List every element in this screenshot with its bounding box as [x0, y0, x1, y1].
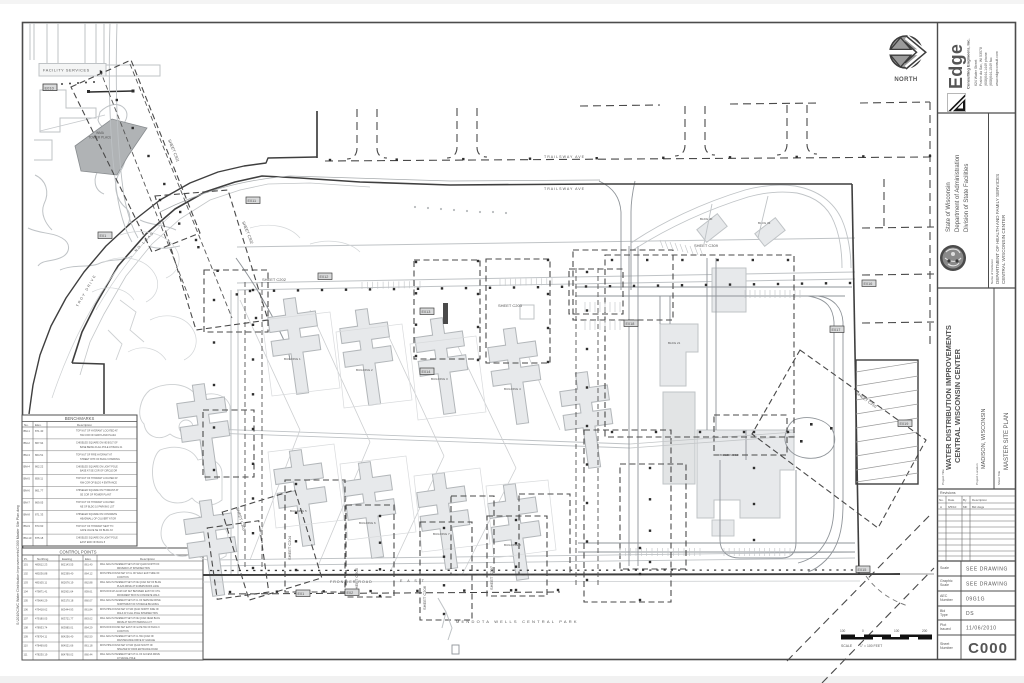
svg-text:109: 109	[24, 635, 29, 639]
svg-text:SHEET C206: SHEET C206	[422, 585, 427, 610]
svg-text:860.44: 860.44	[85, 653, 93, 657]
svg-text:803721.77: 803721.77	[61, 617, 74, 621]
svg-text:MASTER SITE PLAN: MASTER SITE PLAN	[1004, 413, 1010, 470]
svg-text:DRIVEWAY AT INTERSECTION: DRIVEWAY AT INTERSECTION	[117, 567, 150, 570]
svg-text:CHISELED SQUARE ON HYDRANT AT: CHISELED SQUARE ON HYDRANT AT	[76, 489, 119, 492]
svg-text:Type: Type	[940, 613, 948, 617]
svg-text:862.50: 862.50	[85, 635, 93, 639]
svg-text:CENTRAL WISCONSIN CENTER: CENTRAL WISCONSIN CENTER	[1001, 214, 1006, 284]
svg-text:867.94: 867.94	[35, 441, 44, 445]
svg-text:DS: DS	[966, 611, 974, 617]
svg-text:TOP NUT OF HYDRANT LOCATED AT: TOP NUT OF HYDRANT LOCATED AT	[76, 430, 118, 433]
svg-text:478704.11: 478704.11	[35, 635, 48, 639]
svg-text:SHELTER AT PARK ENTRANCE ROAD: SHELTER AT PARK ENTRANCE ROAD	[117, 648, 158, 651]
svg-text:479871.41: 479871.41	[35, 590, 48, 594]
svg-text:Description: Description	[972, 498, 987, 502]
svg-text:MAINTENANCE DRIVE AT GARAGE: MAINTENANCE DRIVE AT GARAGE	[117, 639, 156, 642]
svg-text:CHISELED SQUARE ON LIGHT POLE: CHISELED SQUARE ON LIGHT POLE	[76, 537, 118, 540]
svg-text:E010: E010	[45, 85, 55, 90]
svg-text:E019: E019	[900, 422, 909, 426]
svg-text:875.18: 875.18	[35, 536, 44, 540]
svg-text:Number: Number	[940, 598, 954, 602]
svg-text:Scale: Scale	[940, 583, 949, 587]
svg-text:CHISELED SQUARE ON CONCRETE: CHISELED SQUARE ON CONCRETE	[76, 513, 117, 516]
svg-text:864.12: 864.12	[85, 572, 93, 576]
svg-text:Project Title: Project Title	[941, 469, 945, 485]
svg-text:E013: E013	[422, 310, 431, 314]
svg-text:100: 100	[840, 629, 846, 633]
svg-text:110: 110	[24, 644, 29, 648]
svg-text:Number: Number	[940, 646, 954, 650]
svg-text:BM-1: BM-1	[24, 429, 31, 433]
svg-text:MAG NAIL IN PAVEMENT SET AT C: MAG NAIL IN PAVEMENT SET AT CL OF ACCESS…	[100, 653, 160, 656]
svg-text:BUILDING 7: BUILDING 7	[433, 532, 450, 536]
svg-text:MENDOTA WELLS CENTRAL PARK: MENDOTA WELLS CENTRAL PARK	[456, 619, 579, 624]
svg-text:861.40: 861.40	[85, 563, 93, 567]
svg-text:106: 106	[24, 608, 29, 612]
svg-text:BUILDING 3: BUILDING 3	[431, 377, 448, 381]
svg-text:CONTROL POINTS: CONTROL POINTS	[59, 550, 96, 555]
svg-text:MAG NAIL IN PAVEMENT SET AT C: MAG NAIL IN PAVEMENT SET AT CL SW QUAD O…	[100, 635, 155, 638]
svg-text:BM-6: BM-6	[24, 489, 31, 493]
svg-text:802399.40: 802399.40	[61, 572, 74, 576]
svg-text:JUNCTION: JUNCTION	[117, 577, 129, 579]
svg-text:Pt.: Pt.	[24, 557, 28, 561]
svg-text:SHEET C204: SHEET C204	[287, 535, 292, 560]
svg-text:102: 102	[24, 572, 29, 576]
svg-text:107: 107	[24, 617, 29, 621]
svg-text:104: 104	[24, 590, 29, 594]
svg-text:103: 103	[24, 581, 29, 585]
svg-text:SHEET C202: SHEET C202	[262, 277, 287, 282]
svg-text:108: 108	[24, 626, 29, 630]
svg-text:NORTHWEST OF STORAGE BUILDING: NORTHWEST OF STORAGE BUILDING	[117, 603, 159, 606]
svg-text:TOWER PLACE: TOWER PLACE	[88, 136, 111, 140]
svg-text:STREET INTX OF BLDG 6 PARKING: STREET INTX OF BLDG 6 PARKING	[80, 458, 120, 461]
svg-text:480512.23: 480512.23	[35, 563, 48, 567]
svg-text:E02: E02	[347, 591, 354, 595]
svg-text:803444.93: 803444.93	[61, 608, 74, 612]
svg-text:SCALE: SCALE	[841, 644, 853, 648]
svg-text:E01: E01	[100, 234, 107, 238]
svg-text:E015: E015	[858, 568, 867, 572]
svg-text:624 Water Street: 624 Water Street	[974, 60, 978, 86]
svg-text:E014: E014	[422, 370, 431, 374]
svg-text:860.07: 860.07	[85, 599, 93, 603]
svg-text:1" = 100 FEET: 1" = 100 FEET	[860, 644, 882, 648]
svg-text:09G1G: 09G1G	[966, 597, 985, 603]
svg-text:0: 0	[862, 629, 864, 633]
svg-text:BUILDING 1: BUILDING 1	[284, 357, 301, 361]
svg-text:802676.19: 802676.19	[61, 581, 74, 585]
svg-text:E A S T: E A S T	[400, 579, 426, 583]
svg-text:JUNCTION: JUNCTION	[117, 631, 129, 633]
svg-text:BM-8: BM-8	[24, 512, 31, 516]
svg-text:MAG NAIL IN PAVEMENT SET AT N: MAG NAIL IN PAVEMENT SET AT NE QUAD NEAR…	[100, 617, 160, 620]
svg-text:State of Wisconsin: State of Wisconsin	[946, 182, 952, 232]
svg-text:SEE DRAWING: SEE DRAWING	[966, 582, 1008, 588]
svg-text:Elev.: Elev.	[85, 557, 92, 561]
svg-text:105: 105	[24, 599, 29, 603]
svg-text:NE OF BLDG 10 PARKING LOT: NE OF BLDG 10 PARKING LOT	[80, 505, 115, 508]
svg-text:858.11: 858.11	[35, 477, 44, 481]
svg-text:SEE DRAWING: SEE DRAWING	[966, 567, 1008, 573]
svg-text:864.29: 864.29	[85, 626, 93, 630]
svg-text:IRON PIPE FOUND SET AT SW QUA: IRON PIPE FOUND SET AT SW QUAD NORTH SID…	[100, 608, 160, 611]
svg-text:862.88: 862.88	[85, 581, 93, 585]
svg-text:Easting: Easting	[62, 557, 72, 561]
svg-text:DEPARTMENT OF HEALTH AND FAMIL: DEPARTMENT OF HEALTH AND FAMILY SERVICES	[995, 174, 1000, 284]
svg-text:873.60: 873.60	[35, 524, 44, 528]
svg-text:804521.66: 804521.66	[61, 644, 74, 648]
svg-text:TOP NUT OF HYDRANT LOCATED: TOP NUT OF HYDRANT LOCATED	[76, 501, 115, 504]
svg-text:(608)644-1549 fax: (608)644-1549 fax	[989, 57, 993, 86]
svg-text:803170.18: 803170.18	[61, 599, 74, 603]
svg-text:802901.64: 802901.64	[61, 590, 74, 594]
svg-text:Issued: Issued	[940, 627, 951, 631]
svg-text:Description: Description	[140, 557, 155, 561]
svg-text:BUILDING 6: BUILDING 6	[359, 521, 376, 525]
svg-text:Prairie du Sac, WI 53578: Prairie du Sac, WI 53578	[979, 47, 983, 86]
svg-text:804790.02: 804790.02	[61, 653, 74, 657]
svg-text:200: 200	[922, 629, 928, 633]
svg-text:BLDG 33: BLDG 33	[758, 221, 771, 225]
svg-text:E016: E016	[864, 282, 873, 286]
svg-text:861.18: 861.18	[85, 644, 93, 648]
svg-text:479640.29: 479640.29	[35, 599, 48, 603]
svg-text:FRONTIER ROAD: FRONTIER ROAD	[330, 580, 373, 584]
svg-text:478230.19: 478230.19	[35, 653, 48, 657]
svg-text:E012: E012	[320, 275, 329, 279]
svg-text:Name of Institution: Name of Institution	[990, 259, 994, 284]
svg-text:MONUMENT BOX IN CONCRETE WALK: MONUMENT BOX IN CONCRETE WALK	[117, 594, 160, 597]
svg-text:BM-3: BM-3	[24, 453, 31, 457]
svg-text:Elev.: Elev.	[35, 423, 42, 427]
svg-text:DRIVE AT SOUTH PARKING LOT: DRIVE AT SOUTH PARKING LOT	[117, 621, 152, 624]
svg-text:A: A	[940, 505, 942, 509]
svg-text:WMA: WMA	[96, 131, 105, 135]
svg-text:802143.55: 802143.55	[61, 563, 74, 567]
svg-text:IRON PIPE FOUND SET AT CL OF: IRON PIPE FOUND SET AT CL OF WALK EAST S…	[100, 572, 160, 575]
svg-text:BM-2: BM-2	[24, 441, 31, 445]
svg-text:869.05: 869.05	[35, 500, 44, 504]
svg-text:100: 100	[894, 629, 900, 633]
svg-text:AT SIGNAL POLE: AT SIGNAL POLE	[117, 657, 136, 660]
svg-text:861.77: 861.77	[35, 489, 44, 493]
svg-text:S:\2010\CWC Water Distribution: S:\2010\CWC Water Distribution Improveme…	[16, 505, 20, 625]
svg-text:CENTRAL WISCONSIN CENTER: CENTRAL WISCONSIN CENTER	[953, 348, 962, 463]
svg-text:862.22: 862.22	[35, 465, 44, 469]
svg-text:HEADWALL OF CULVERT AT DR: HEADWALL OF CULVERT AT DR	[80, 517, 116, 520]
svg-text:Revisions: Revisions	[940, 491, 956, 495]
svg-text:IRON ROD W/ ALUM CAP SET BETW: IRON ROD W/ ALUM CAP SET BETWEEN EAST OF…	[100, 590, 161, 593]
svg-text:NORTH: NORTH	[894, 77, 917, 83]
svg-text:No.: No.	[939, 498, 944, 502]
svg-text:Sheet Title: Sheet Title	[997, 470, 1001, 485]
svg-text:Bid dwgs: Bid dwgs	[972, 505, 985, 509]
svg-text:E01: E01	[298, 592, 305, 596]
svg-text:TOP NUT OF FIRE HYDRANT AT: TOP NUT OF FIRE HYDRANT AT	[76, 453, 113, 456]
svg-text:6/5/10: 6/5/10	[948, 505, 957, 509]
svg-text:BM-9: BM-9	[24, 524, 31, 528]
svg-text:479418.62: 479418.62	[35, 608, 48, 612]
svg-text:BASE AT SE COR OF CIRCLE DR: BASE AT SE COR OF CIRCLE DR	[80, 470, 117, 473]
svg-text:E018: E018	[626, 322, 635, 326]
svg-text:TRAILSWAY AVE: TRAILSWAY AVE	[544, 187, 585, 191]
svg-text:11/06/2010: 11/06/2010	[966, 626, 997, 632]
svg-text:CHISELED SQUARE ON LIGHT POLE: CHISELED SQUARE ON LIGHT POLE	[76, 465, 118, 468]
svg-text:CHISELED SQUARE ON NE BOLT OF: CHISELED SQUARE ON NE BOLT OF	[76, 442, 118, 445]
svg-text:111: 111	[24, 653, 28, 657]
svg-text:480236.88: 480236.88	[35, 572, 48, 576]
svg-text:SHEET C207: SHEET C207	[489, 565, 494, 590]
svg-text:479180.05: 479180.05	[35, 617, 48, 621]
svg-text:SE COR OF POWER PLANT: SE COR OF POWER PLANT	[80, 494, 112, 497]
svg-text:Consulting Engineers, Inc.: Consulting Engineers, Inc.	[966, 39, 971, 89]
svg-text:By: By	[963, 498, 967, 502]
svg-text:864.51: 864.51	[35, 453, 44, 457]
svg-text:MAG NAIL IN PAVEMENT SET AT C: MAG NAIL IN PAVEMENT SET AT CL OF SERVIC…	[100, 599, 161, 602]
svg-text:E011: E011	[248, 199, 257, 203]
svg-text:No.: No.	[24, 423, 29, 427]
svg-text:BM-10: BM-10	[24, 536, 32, 540]
svg-text:GATE VALVE SE OF BLDG 33: GATE VALVE SE OF BLDG 33	[80, 529, 113, 532]
svg-text:Scale: Scale	[940, 566, 949, 570]
svg-text:C000: C000	[968, 640, 1008, 657]
svg-text:TRAILSWAY AVE: TRAILSWAY AVE	[544, 155, 585, 159]
svg-text:Project Location: Project Location	[975, 463, 979, 485]
svg-text:SHEET C203: SHEET C203	[498, 303, 523, 308]
svg-text:BUILDING 4: BUILDING 4	[504, 387, 521, 391]
svg-text:BENCHMARKS: BENCHMARKS	[65, 416, 95, 421]
svg-text:871.40: 871.40	[35, 429, 44, 433]
svg-text:TOP NUT OF HYDRANT LOCATED AT: TOP NUT OF HYDRANT LOCATED AT	[76, 477, 118, 480]
svg-text:804256.40: 804256.40	[61, 635, 74, 639]
svg-text:861.84: 861.84	[85, 608, 93, 612]
svg-text:www.edgeconsult.com: www.edgeconsult.com	[995, 51, 999, 86]
svg-text:Date: Date	[948, 498, 955, 502]
svg-text:NW COR OF BLDG 4 ENTRANCE: NW COR OF BLDG 4 ENTRANCE	[80, 482, 117, 485]
svg-text:BUILDING 2: BUILDING 2	[356, 368, 373, 372]
svg-text:(608)644-1449 phone: (608)644-1449 phone	[984, 52, 988, 86]
svg-text:TOP NUT OF HYDRANT NEXT TO: TOP NUT OF HYDRANT NEXT TO	[76, 525, 114, 528]
svg-text:871.33: 871.33	[35, 512, 44, 516]
svg-text:IRON PIPE FOUND SET AT NW QUA: IRON PIPE FOUND SET AT NW QUAD SOUTH OF	[100, 644, 154, 647]
svg-text:PLAZA DRIVE AT SUPERVISORS LAN: PLAZA DRIVE AT SUPERVISORS LANE	[117, 585, 159, 588]
svg-text:WATER DISTRIBUTION IMPROVEMENT: WATER DISTRIBUTION IMPROVEMENTS	[944, 325, 953, 470]
svg-text:SHEET C309: SHEET C309	[694, 243, 719, 248]
svg-text:MADISON, WISCONSIN: MADISON, WISCONSIN	[981, 408, 987, 469]
svg-text:E017: E017	[832, 328, 841, 332]
svg-text:480105.11: 480105.11	[35, 581, 48, 585]
svg-text:MAG NAIL IN PAVEMENT SET AT N: MAG NAIL IN PAVEMENT SET AT NE QUAD SW O…	[100, 581, 161, 584]
svg-text:IRON ROD FOUND SET EAST OF GA: IRON ROD FOUND SET EAST OF GATE SW OF BL…	[100, 626, 160, 629]
svg-text:101: 101	[24, 563, 29, 567]
svg-text:BASE BEING FLAG POLE AT BLDG 2: BASE BEING FLAG POLE AT BLDG 21	[80, 446, 123, 449]
svg-text:863.02: 863.02	[85, 617, 93, 621]
svg-text:Northing: Northing	[37, 557, 49, 561]
svg-text:803985.01: 803985.01	[61, 626, 74, 630]
svg-text:859.61: 859.61	[85, 590, 93, 594]
svg-text:MAG NAIL IN PAVEMENT SET AT N: MAG NAIL IN PAVEMENT SET AT NW QUAD NORT…	[100, 563, 160, 566]
svg-text:WALK AT FLAG POLE INTERSECTION: WALK AT FLAG POLE INTERSECTION	[117, 612, 158, 615]
svg-text:MF: MF	[963, 505, 967, 509]
svg-text:Description: Description	[77, 423, 92, 427]
svg-text:BLDG 21: BLDG 21	[668, 341, 681, 345]
svg-text:478469.85: 478469.85	[35, 644, 48, 648]
svg-text:BM-5: BM-5	[24, 477, 31, 481]
svg-text:SW COR OF MARYLAND PLAZA: SW COR OF MARYLAND PLAZA	[80, 434, 116, 437]
svg-text:Edge: Edge	[946, 44, 966, 89]
svg-text:FACILITY SERVICES: FACILITY SERVICES	[43, 69, 90, 73]
svg-text:BLDG 30: BLDG 30	[700, 217, 713, 221]
svg-text:Department of Administration: Department of Administration	[955, 155, 961, 232]
svg-text:Division of State Facilities: Division of State Facilities	[964, 164, 970, 232]
svg-text:BM-7: BM-7	[24, 500, 31, 504]
svg-text:EAST END OF BLDG 8: EAST END OF BLDG 8	[80, 541, 106, 544]
svg-text:BM-4: BM-4	[24, 465, 31, 469]
svg-text:BUILDING 5: BUILDING 5	[290, 509, 307, 513]
svg-text:478933.74: 478933.74	[35, 626, 48, 630]
